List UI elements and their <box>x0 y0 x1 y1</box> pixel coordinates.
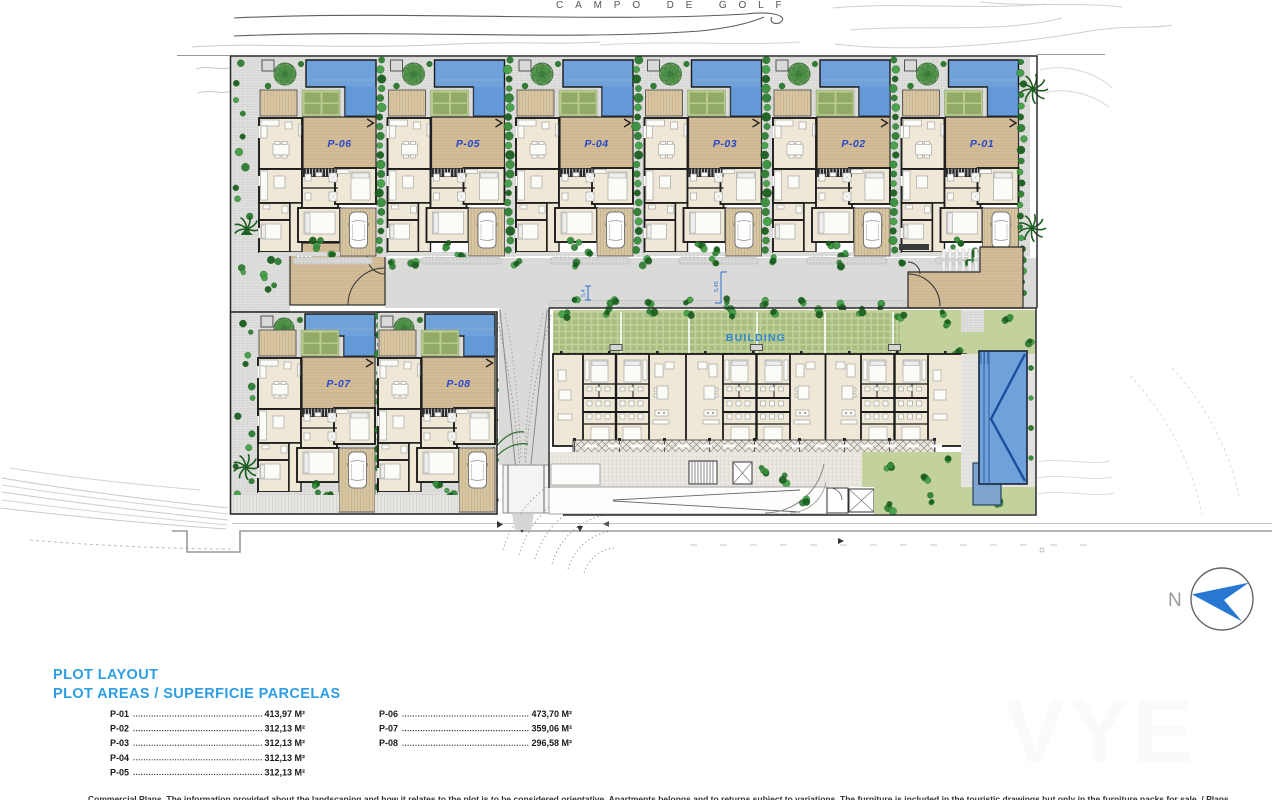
svg-text:P-01: P-01 <box>110 709 129 719</box>
svg-text:P-08: P-08 <box>379 738 398 748</box>
svg-text:296,58 M²: 296,58 M² <box>531 738 572 748</box>
svg-text:BUILDING: BUILDING <box>726 332 786 344</box>
svg-text:P-03: P-03 <box>110 738 129 748</box>
svg-text:N: N <box>1168 590 1182 611</box>
svg-text:P-03: P-03 <box>713 138 737 150</box>
svg-text:P-02: P-02 <box>841 138 865 150</box>
svg-text:473,70 M²: 473,70 M² <box>531 709 572 719</box>
svg-text:P-08: P-08 <box>446 378 470 390</box>
svg-text:PLOT LAYOUT: PLOT LAYOUT <box>53 667 158 683</box>
svg-text:312,13 M²: 312,13 M² <box>264 767 305 777</box>
svg-text:Commercial Plans. The informat: Commercial Plans. The information provid… <box>88 794 1229 800</box>
svg-text:312,13 M²: 312,13 M² <box>264 724 305 734</box>
svg-text:P-06: P-06 <box>379 709 398 719</box>
svg-text:P-01: P-01 <box>970 138 994 150</box>
svg-text:VYE: VYE <box>1005 682 1197 782</box>
svg-text:C A M P O D E G: C A M P O D E G O L F <box>556 0 784 11</box>
svg-text:413,97 M²: 413,97 M² <box>264 709 305 719</box>
svg-text:5,45: 5,45 <box>714 281 720 292</box>
svg-text:5,4: 5,4 <box>581 289 587 297</box>
svg-text:P-05: P-05 <box>110 767 129 777</box>
svg-text:P-04: P-04 <box>110 753 129 763</box>
svg-text:P-02: P-02 <box>110 724 129 734</box>
svg-text:P-07: P-07 <box>379 724 398 734</box>
svg-text:P-07: P-07 <box>326 378 351 390</box>
svg-text:P-06: P-06 <box>327 138 351 150</box>
svg-text:P-04: P-04 <box>584 138 608 150</box>
svg-text:312,13 M²: 312,13 M² <box>264 753 305 763</box>
svg-text:359,06 M²: 359,06 M² <box>531 724 572 734</box>
svg-text:P-05: P-05 <box>456 138 480 150</box>
svg-text:312,13 M²: 312,13 M² <box>264 738 305 748</box>
svg-text:PLOT AREAS / SUPERFICIE PARCEL: PLOT AREAS / SUPERFICIE PARCELAS <box>53 686 341 702</box>
